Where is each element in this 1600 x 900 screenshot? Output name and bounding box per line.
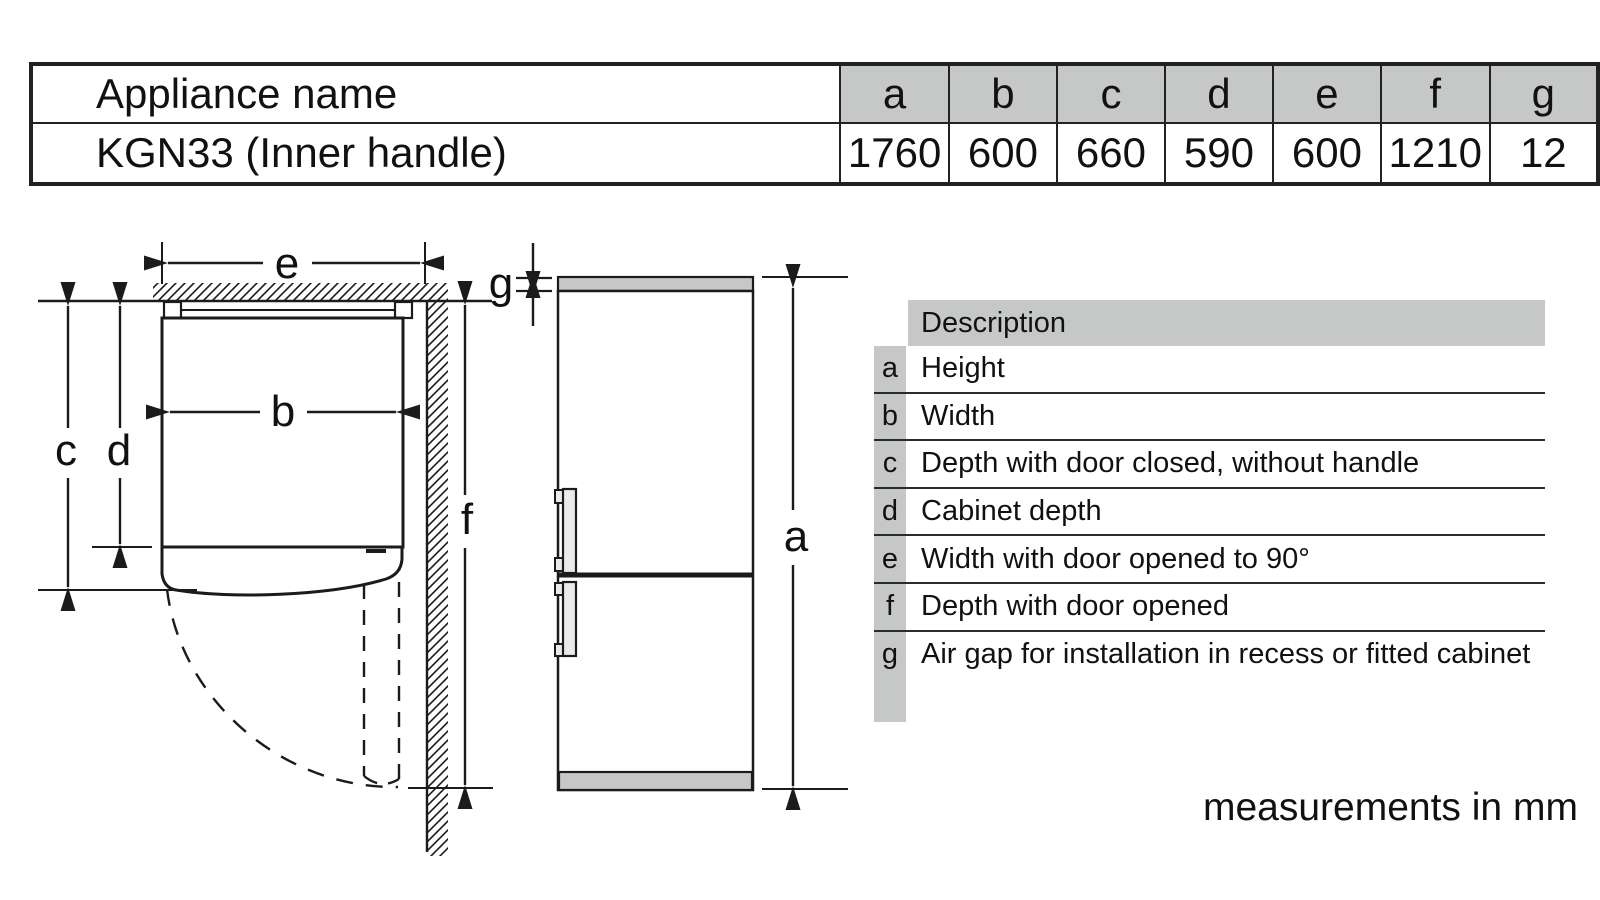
col-header-f: f [1381,64,1490,123]
description-text: Width [908,394,1545,440]
value-g: 12 [1490,123,1598,184]
col-header-a: a [840,64,949,123]
door-closed-outline [162,547,402,595]
description-key: d [874,489,906,535]
air-gap-strip [558,277,753,291]
description-text: Depth with door opened [908,584,1545,630]
spec-data-row: KGN33 (Inner handle) 1760 600 660 590 60… [31,123,1598,184]
description-row-a: a Height [874,346,1545,394]
appliance-name-header: Appliance name [31,64,840,123]
col-header-e: e [1273,64,1381,123]
description-key: a [874,346,906,392]
description-footer-spacer [874,677,1545,722]
description-row-e: e Width with door opened to 90° [874,536,1545,584]
dim-label-f: f [461,495,474,544]
dim-e: e [162,239,425,288]
dimension-value-table: Appliance name a b c d e f g KGN33 (Inne… [29,62,1600,186]
hinge-right [395,302,412,318]
units-footnote: measurements in mm [1203,786,1578,830]
description-row-b: b Width [874,394,1545,442]
description-text: Width with door opened to 90° [908,536,1545,582]
value-e: 600 [1273,123,1381,184]
appliance-model-name: KGN33 (Inner handle) [31,123,840,184]
fridge-front-outline [558,291,753,790]
col-header-g: g [1490,64,1598,123]
dim-f: f [408,305,493,788]
plinth [559,772,752,790]
description-text: Depth with door closed, without handle [908,441,1545,487]
dim-label-a: a [784,512,809,561]
description-header-row: Description [874,300,1545,346]
dim-label-c: c [55,426,77,475]
dim-label-e: e [275,239,299,288]
col-header-c: c [1057,64,1165,123]
manual-page: e b c d [0,0,1600,900]
value-d: 590 [1165,123,1273,184]
col-header-d: d [1165,64,1273,123]
value-c: 660 [1057,123,1165,184]
value-f: 1210 [1381,123,1490,184]
dim-a: a [762,277,848,789]
wall-hatch-right [427,301,448,856]
description-key: c [874,441,906,487]
hinge-left [164,302,181,318]
value-a: 1760 [840,123,949,184]
dim-label-g: g [489,259,513,308]
description-text: Cabinet depth [908,489,1545,535]
wall-hatch-top [153,283,448,301]
description-header-spacer [874,300,906,346]
description-key: f [874,584,906,630]
description-text: Air gap for installation in recess or fi… [908,632,1545,678]
description-key: e [874,536,906,582]
description-key: b [874,394,906,440]
description-table: Description a Height b Width c Depth wit… [874,300,1545,722]
description-header: Description [908,300,1545,346]
dim-g: g [489,243,552,326]
top-view-diagram: e b c d [38,239,493,856]
dim-label-d: d [107,426,131,475]
description-key: g [874,632,906,678]
description-key-column-tail [874,677,906,722]
dim-d: d [92,306,152,547]
description-row-c: c Depth with door closed, without handle [874,441,1545,489]
dim-label-b: b [271,387,295,436]
description-row-f: f Depth with door opened [874,584,1545,632]
description-row-d: d Cabinet depth [874,489,1545,537]
front-view-diagram: g a [489,243,848,790]
description-text: Height [908,346,1545,392]
col-header-b: b [949,64,1057,123]
description-row-g: g Air gap for installation in recess or … [874,632,1545,678]
spec-header-row: Appliance name a b c d e f g [31,64,1598,123]
value-b: 600 [949,123,1057,184]
open-door-bottom [364,776,399,784]
